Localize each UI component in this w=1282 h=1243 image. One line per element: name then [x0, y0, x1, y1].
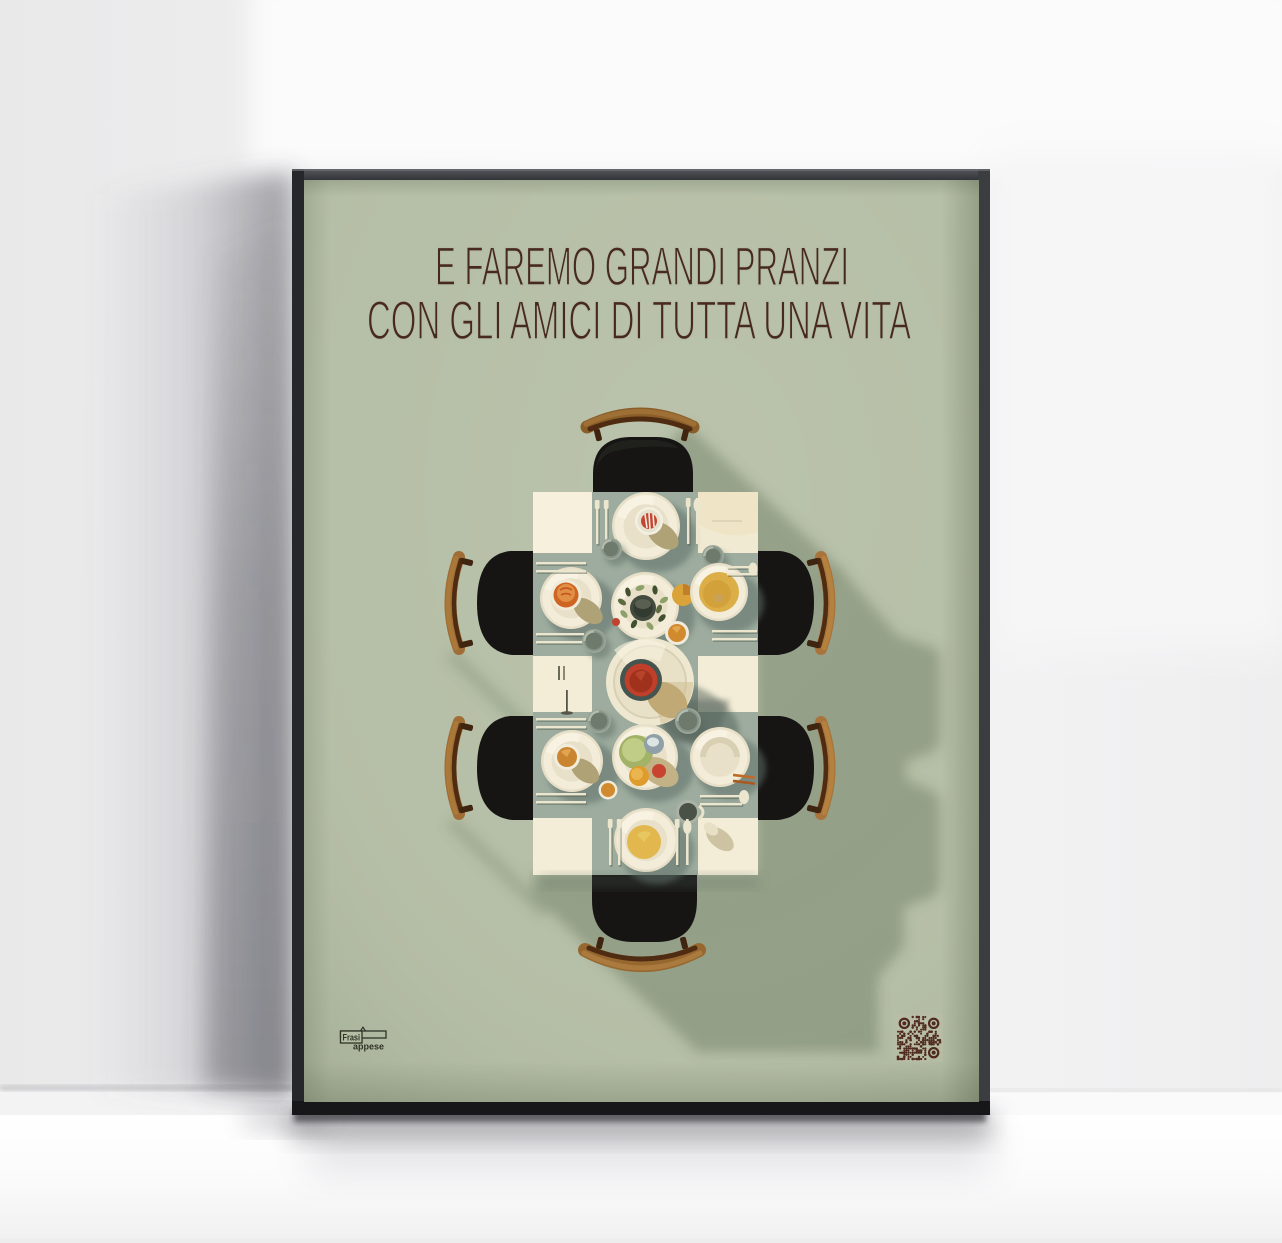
svg-text:appese: appese: [353, 1042, 384, 1053]
svg-text:CON GLI AMICI DI TUTTA UNA VIT: CON GLI AMICI DI TUTTA UNA VITA: [367, 289, 911, 351]
svg-text:E FAREMO GRANDI PRANZI: E FAREMO GRANDI PRANZI: [435, 235, 849, 297]
